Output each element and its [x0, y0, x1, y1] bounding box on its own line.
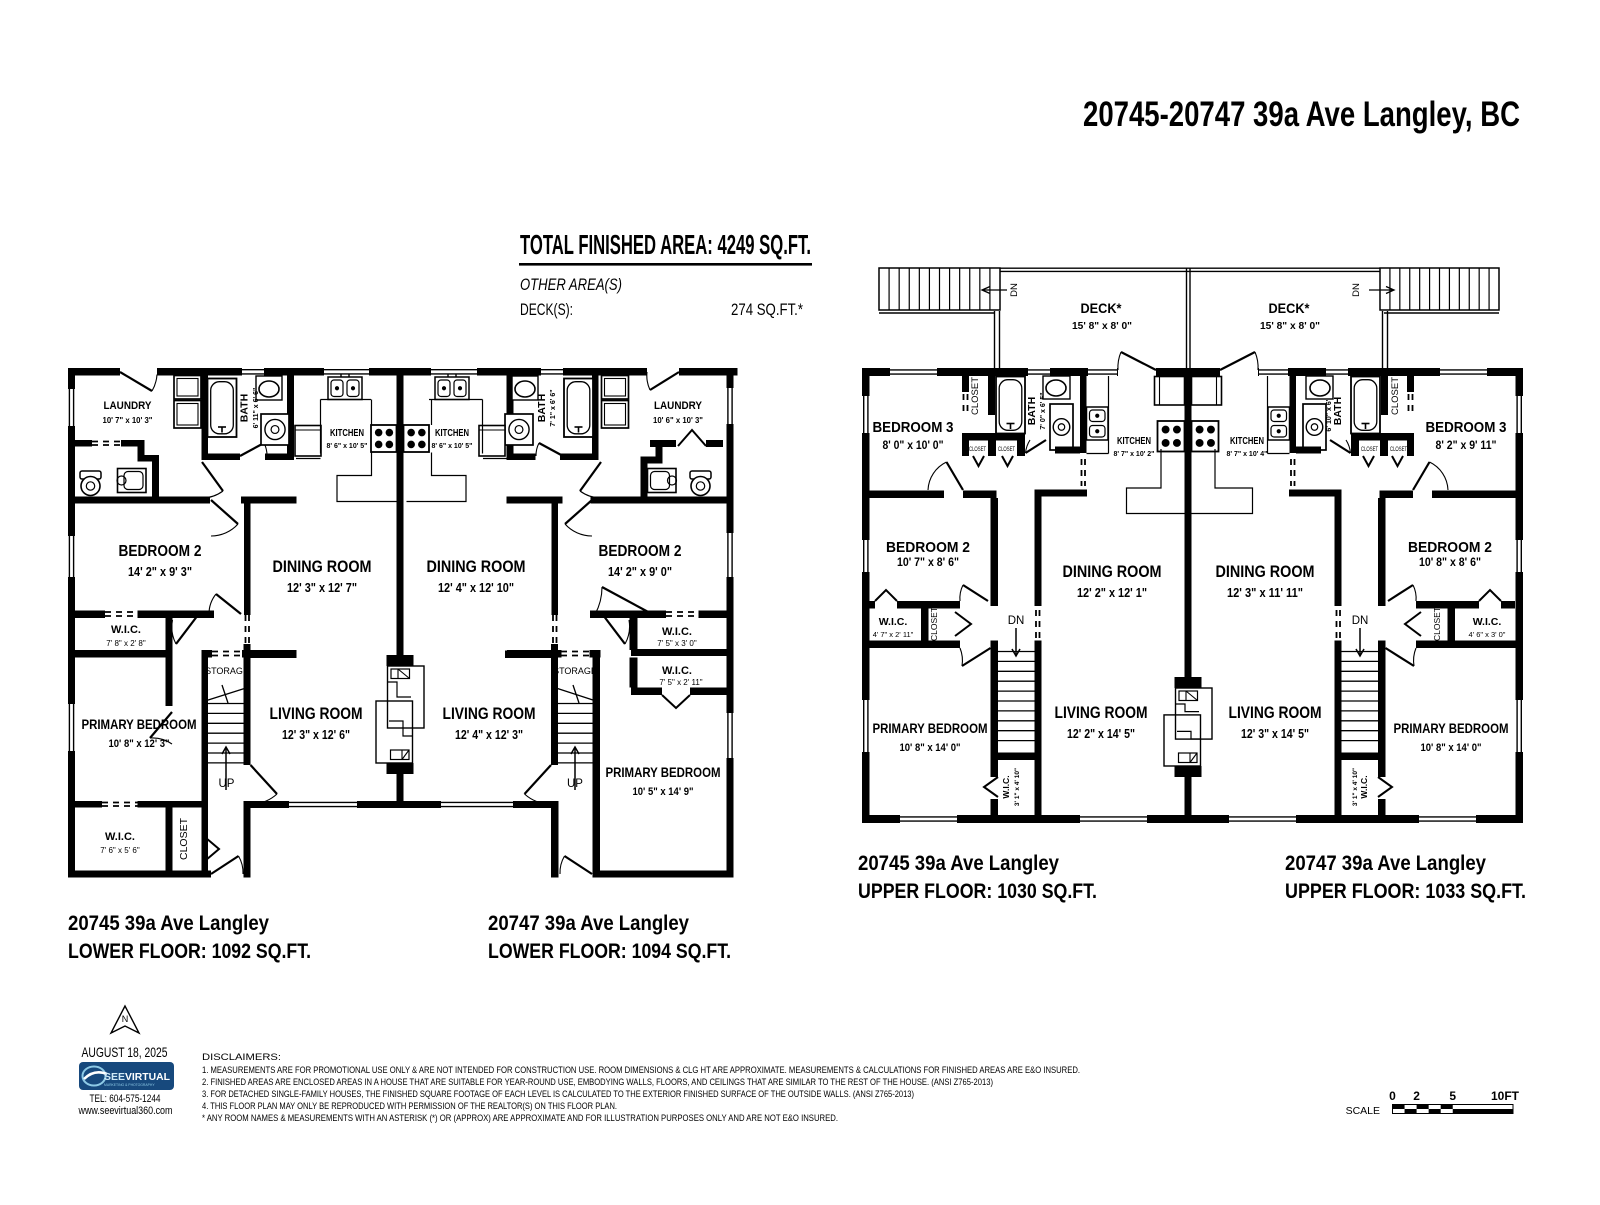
svg-text:274 SQ.FT.*: 274 SQ.FT.*	[731, 300, 803, 319]
svg-text:7' 5" x 3' 0": 7' 5" x 3' 0"	[657, 639, 697, 648]
svg-text:DISCLAIMERS:: DISCLAIMERS:	[202, 1052, 281, 1063]
svg-text:LIVING ROOM: LIVING ROOM	[270, 704, 363, 723]
svg-text:BEDROOM 2: BEDROOM 2	[886, 539, 970, 556]
svg-text:BATH: BATH	[1332, 397, 1344, 425]
svg-text:SEE: SEE	[104, 1071, 125, 1083]
svg-text:SCALE: SCALE	[1346, 1105, 1380, 1117]
svg-text:20747 39a Ave Langley: 20747 39a Ave Langley	[488, 912, 689, 935]
svg-text:14' 2" x 9' 0": 14' 2" x 9' 0"	[608, 565, 672, 579]
svg-text:0: 0	[1389, 1089, 1396, 1103]
svg-text:BATH: BATH	[239, 394, 251, 422]
svg-text:12' 3" x 12' 7": 12' 3" x 12' 7"	[287, 581, 357, 595]
svg-text:4. THIS FLOOR PLAN MAY ONLY BE: 4. THIS FLOOR PLAN MAY ONLY BE REPRODUCE…	[202, 1101, 617, 1112]
svg-text:8' 0" x 10' 0": 8' 0" x 10' 0"	[883, 438, 944, 452]
svg-text:TEL: 604-575-1244: TEL: 604-575-1244	[90, 1093, 161, 1105]
svg-text:CLOSET: CLOSET	[998, 446, 1015, 453]
svg-text:PRIMARY BEDROOM: PRIMARY BEDROOM	[82, 717, 197, 732]
svg-text:8' 7" x 10' 4": 8' 7" x 10' 4"	[1227, 449, 1268, 458]
svg-text:BEDROOM 2: BEDROOM 2	[119, 543, 202, 560]
svg-text:LIVING ROOM: LIVING ROOM	[443, 704, 536, 723]
svg-text:BEDROOM 3: BEDROOM 3	[1426, 419, 1507, 436]
svg-text:3. FOR DETACHED SINGLE-FAMILY: 3. FOR DETACHED SINGLE-FAMILY HOUSES, TH…	[202, 1089, 914, 1100]
svg-text:2: 2	[1413, 1089, 1420, 1103]
svg-text:7' 1" x 6' 6": 7' 1" x 6' 6"	[550, 389, 557, 426]
svg-text:DN: DN	[1009, 283, 1020, 297]
svg-text:4' 7" x 2' 11": 4' 7" x 2' 11"	[873, 630, 914, 639]
svg-text:5: 5	[1449, 1089, 1456, 1103]
svg-text:UPPER FLOOR: 1033 SQ.FT.: UPPER FLOOR: 1033 SQ.FT.	[1285, 880, 1526, 903]
svg-text:20745-20747 39a Ave Langley, B: 20745-20747 39a Ave Langley, BC	[1083, 95, 1520, 134]
svg-text:PRIMARY BEDROOM: PRIMARY BEDROOM	[873, 721, 988, 736]
svg-text:10' 7" x 10' 3": 10' 7" x 10' 3"	[103, 415, 153, 425]
svg-text:15' 8" x 8' 0": 15' 8" x 8' 0"	[1072, 320, 1132, 332]
svg-text:LOWER FLOOR: 1092 SQ.FT.: LOWER FLOOR: 1092 SQ.FT.	[68, 940, 311, 963]
svg-text:10' 8" x 14' 0": 10' 8" x 14' 0"	[900, 742, 961, 754]
svg-text:UPPER FLOOR: 1030 SQ.FT.: UPPER FLOOR: 1030 SQ.FT.	[858, 880, 1097, 903]
svg-text:8' 7" x 10' 2": 8' 7" x 10' 2"	[1114, 449, 1155, 458]
svg-text:DECK(S):: DECK(S):	[520, 300, 573, 319]
svg-text:14' 2" x 9' 3": 14' 2" x 9' 3"	[128, 565, 192, 579]
svg-text:DECK*: DECK*	[1081, 301, 1123, 316]
svg-text:W.I.C.: W.I.C.	[1001, 775, 1011, 798]
svg-text:12' 3" x 12' 6": 12' 3" x 12' 6"	[282, 728, 350, 742]
svg-text:LIVING ROOM: LIVING ROOM	[1229, 703, 1322, 722]
svg-text:W.I.C.: W.I.C.	[1359, 775, 1369, 798]
svg-text:STORAGE: STORAGE	[553, 666, 597, 676]
svg-text:10' 5" x 14' 9": 10' 5" x 14' 9"	[633, 786, 694, 798]
svg-text:1. MEASUREMENTS ARE FOR PROMOT: 1. MEASUREMENTS ARE FOR PROMOTIONAL USE …	[202, 1065, 1080, 1076]
svg-text:W.I.C.: W.I.C.	[662, 665, 692, 677]
svg-text:VIRTUAL: VIRTUAL	[125, 1071, 171, 1083]
svg-text:CLOSET: CLOSET	[969, 446, 986, 453]
svg-text:LOWER FLOOR: 1094 SQ.FT.: LOWER FLOOR: 1094 SQ.FT.	[488, 940, 731, 963]
svg-text:TOTAL FINISHED AREA: 4249 SQ.: TOTAL FINISHED AREA: 4249 SQ.FT.	[520, 229, 811, 260]
svg-text:7' 5" x 2' 11": 7' 5" x 2' 11"	[659, 678, 702, 687]
svg-text:BATH: BATH	[536, 394, 548, 422]
svg-text:20747 39a Ave Langley: 20747 39a Ave Langley	[1285, 852, 1486, 875]
svg-text:15' 8" x 8' 0": 15' 8" x 8' 0"	[1260, 320, 1320, 332]
svg-text:UP: UP	[567, 778, 583, 790]
svg-text:8' 6" x 10' 5": 8' 6" x 10' 5"	[327, 441, 368, 450]
svg-text:DINING ROOM: DINING ROOM	[1063, 562, 1162, 581]
svg-text:10FT: 10FT	[1491, 1089, 1520, 1103]
svg-text:CLOSET: CLOSET	[1390, 377, 1401, 415]
svg-text:12' 2" x 12' 1": 12' 2" x 12' 1"	[1077, 586, 1147, 600]
svg-text:8' 6" x 10' 5": 8' 6" x 10' 5"	[432, 441, 473, 450]
svg-text:KITCHEN: KITCHEN	[435, 427, 469, 439]
svg-text:12' 3" x 14' 5": 12' 3" x 14' 5"	[1241, 727, 1309, 741]
svg-text:12' 4" x 12' 10": 12' 4" x 12' 10"	[438, 581, 514, 595]
svg-text:BEDROOM 2: BEDROOM 2	[1408, 539, 1492, 556]
svg-text:DN: DN	[1352, 615, 1369, 627]
svg-text:DINING ROOM: DINING ROOM	[273, 557, 372, 576]
svg-text:CLOSET: CLOSET	[1432, 607, 1442, 641]
svg-text:20745 39a Ave Langley: 20745 39a Ave Langley	[858, 852, 1059, 875]
svg-text:10' 8" x 8' 6": 10' 8" x 8' 6"	[1419, 555, 1481, 569]
svg-text:CLOSET: CLOSET	[1361, 446, 1378, 453]
svg-text:BEDROOM 2: BEDROOM 2	[599, 543, 682, 560]
svg-text:W.I.C.: W.I.C.	[105, 831, 135, 843]
svg-text:4' 6" x 3' 0": 4' 6" x 3' 0"	[1469, 630, 1506, 639]
svg-text:N: N	[122, 1014, 129, 1024]
svg-text:10' 7" x 8' 6": 10' 7" x 8' 6"	[897, 555, 959, 569]
svg-text:12' 3" x 11' 11": 12' 3" x 11' 11"	[1227, 586, 1303, 600]
svg-text:CLOSET: CLOSET	[929, 607, 939, 641]
svg-text:BEDROOM 3: BEDROOM 3	[873, 419, 954, 436]
svg-text:DN: DN	[1008, 615, 1025, 627]
svg-text:DINING ROOM: DINING ROOM	[1216, 562, 1315, 581]
svg-text:20745 39a Ave Langley: 20745 39a Ave Langley	[68, 912, 269, 935]
svg-text:7' 6" x 5' 6": 7' 6" x 5' 6"	[100, 846, 140, 855]
svg-text:3' 1" x 4' 10": 3' 1" x 4' 10"	[1014, 768, 1021, 806]
svg-text:LAUNDRY: LAUNDRY	[104, 400, 153, 412]
svg-text:CLOSET: CLOSET	[970, 377, 981, 415]
svg-text:W.I.C.: W.I.C.	[662, 626, 692, 638]
svg-text:10' 8" x 14' 0": 10' 8" x 14' 0"	[1421, 742, 1482, 754]
svg-text:STORAGE: STORAGE	[205, 666, 249, 676]
svg-text:PRIMARY BEDROOM: PRIMARY BEDROOM	[1394, 721, 1509, 736]
svg-text:LIVING ROOM: LIVING ROOM	[1055, 703, 1148, 722]
svg-text:LAUNDRY: LAUNDRY	[654, 400, 703, 412]
svg-text:DINING ROOM: DINING ROOM	[427, 557, 526, 576]
svg-text:DECK*: DECK*	[1269, 301, 1311, 316]
svg-text:6' 11" x 6' 6": 6' 11" x 6' 6"	[253, 388, 260, 429]
svg-text:OTHER AREA(S): OTHER AREA(S)	[520, 275, 622, 294]
svg-text:BATH: BATH	[1026, 397, 1038, 425]
svg-text:DN: DN	[1351, 283, 1362, 297]
svg-text:2. FINISHED AREAS ARE ENCLOSED: 2. FINISHED AREAS ARE ENCLOSED AREAS IN …	[202, 1077, 993, 1088]
svg-text:3' 1" x 4' 10": 3' 1" x 4' 10"	[1352, 768, 1359, 806]
svg-text:UP: UP	[219, 778, 235, 790]
svg-text:W.I.C.: W.I.C.	[111, 624, 141, 636]
svg-text:12' 4" x 12' 3": 12' 4" x 12' 3"	[455, 728, 523, 742]
svg-text:7' 8" x 2' 8": 7' 8" x 2' 8"	[106, 639, 146, 648]
svg-text:www.seevirtual360.com: www.seevirtual360.com	[78, 1105, 173, 1117]
svg-text:W.I.C.: W.I.C.	[879, 616, 908, 628]
svg-text:8' 2" x 9' 11": 8' 2" x 9' 11"	[1436, 438, 1497, 452]
svg-text:MARKETING & PHOTOGRAPHY: MARKETING & PHOTOGRAPHY	[104, 1083, 155, 1087]
svg-text:10' 8" x 12' 3": 10' 8" x 12' 3"	[109, 738, 170, 750]
svg-text:PRIMARY BEDROOM: PRIMARY BEDROOM	[606, 765, 721, 780]
svg-text:CLOSET: CLOSET	[1390, 446, 1407, 453]
svg-text:KITCHEN: KITCHEN	[1230, 435, 1264, 447]
svg-text:12' 2" x 14' 5": 12' 2" x 14' 5"	[1067, 727, 1135, 741]
svg-text:AUGUST 18, 2025: AUGUST 18, 2025	[82, 1044, 168, 1060]
svg-text:CLOSET: CLOSET	[178, 817, 190, 860]
svg-text:KITCHEN: KITCHEN	[1117, 435, 1151, 447]
svg-text:* ANY ROOM NAMES & MEASUREMENT: * ANY ROOM NAMES & MEASUREMENTS WITH AN …	[202, 1113, 838, 1124]
svg-text:10' 6" x 10' 3": 10' 6" x 10' 3"	[653, 415, 703, 425]
svg-text:W.I.C.: W.I.C.	[1473, 616, 1502, 628]
svg-text:KITCHEN: KITCHEN	[330, 427, 364, 439]
